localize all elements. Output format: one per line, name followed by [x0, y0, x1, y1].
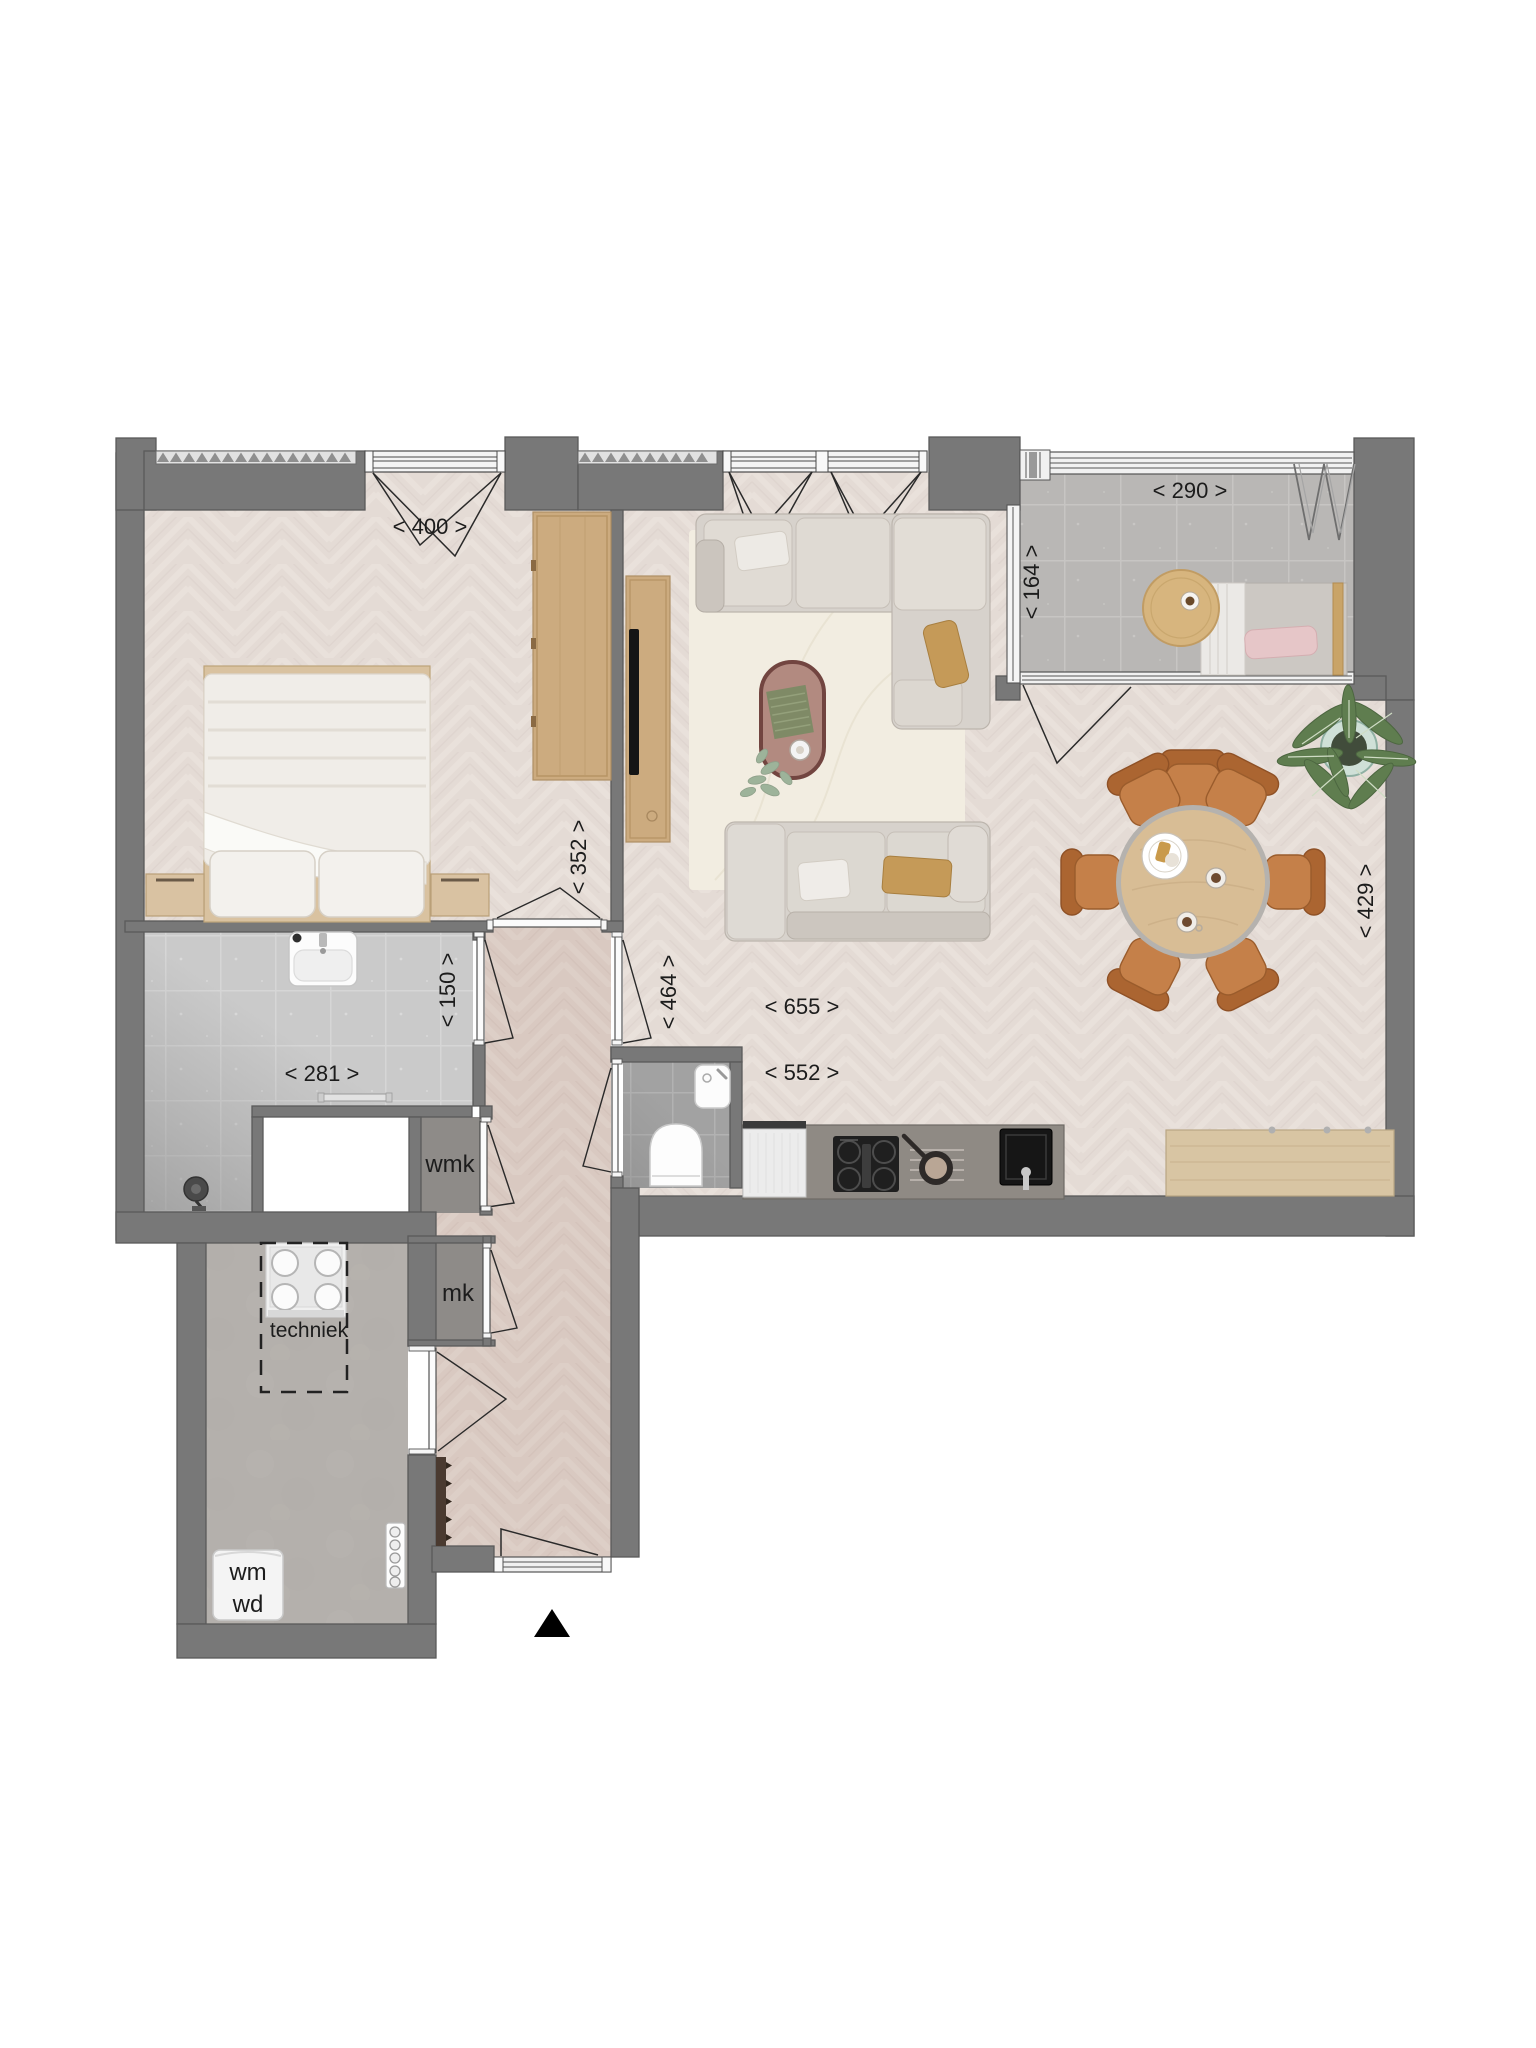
svg-text:techniek: techniek — [270, 1319, 349, 1342]
svg-text:< 150 >: < 150 > — [435, 953, 460, 1028]
svg-text:< 464 >: < 464 > — [656, 955, 681, 1030]
svg-text:< 655 >: < 655 > — [765, 994, 840, 1019]
svg-text:wd: wd — [232, 1591, 264, 1618]
svg-text:< 281 >: < 281 > — [285, 1061, 360, 1086]
svg-text:mk: mk — [442, 1280, 475, 1307]
svg-text:< 164 >: < 164 > — [1019, 545, 1044, 620]
svg-text:< 400 >: < 400 > — [393, 514, 468, 539]
svg-text:< 290 >: < 290 > — [1153, 478, 1228, 503]
svg-text:< 552 >: < 552 > — [765, 1060, 840, 1085]
svg-text:wm: wm — [228, 1559, 266, 1586]
svg-text:< 429 >: < 429 > — [1353, 864, 1378, 939]
svg-text:< 352 >: < 352 > — [566, 820, 591, 895]
svg-text:wmk: wmk — [424, 1151, 475, 1178]
